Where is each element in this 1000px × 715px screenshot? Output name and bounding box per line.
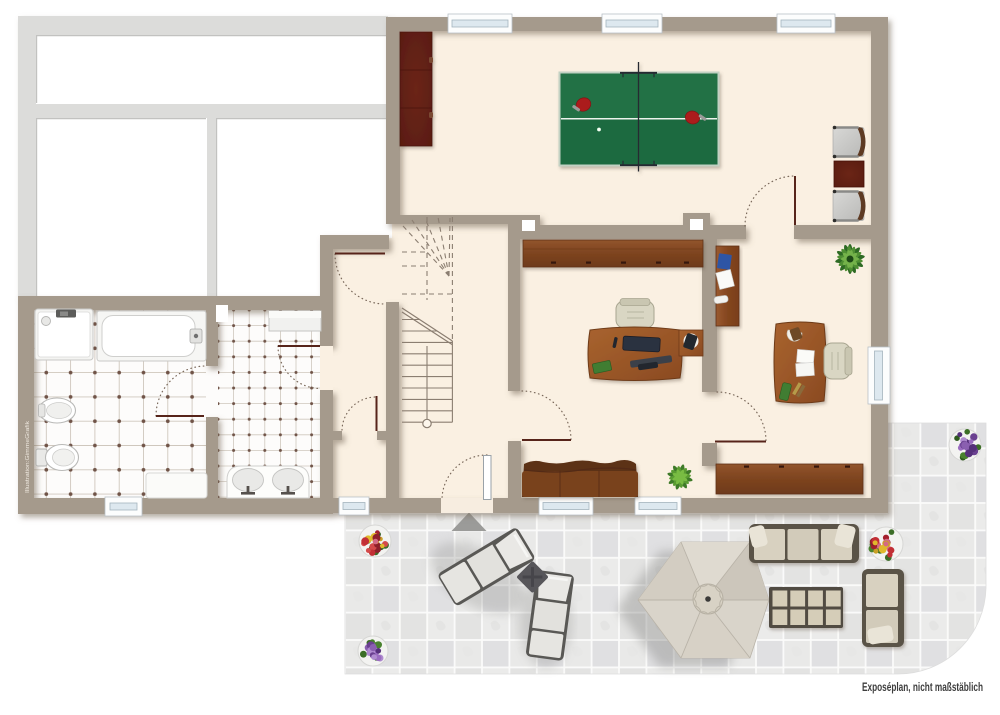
svg-text:Illustration:GimmeGrafik: Illustration:GimmeGrafik [25, 420, 31, 493]
svg-text:Exposéplan, nicht maßstäblich: Exposéplan, nicht maßstäblich [862, 682, 983, 694]
